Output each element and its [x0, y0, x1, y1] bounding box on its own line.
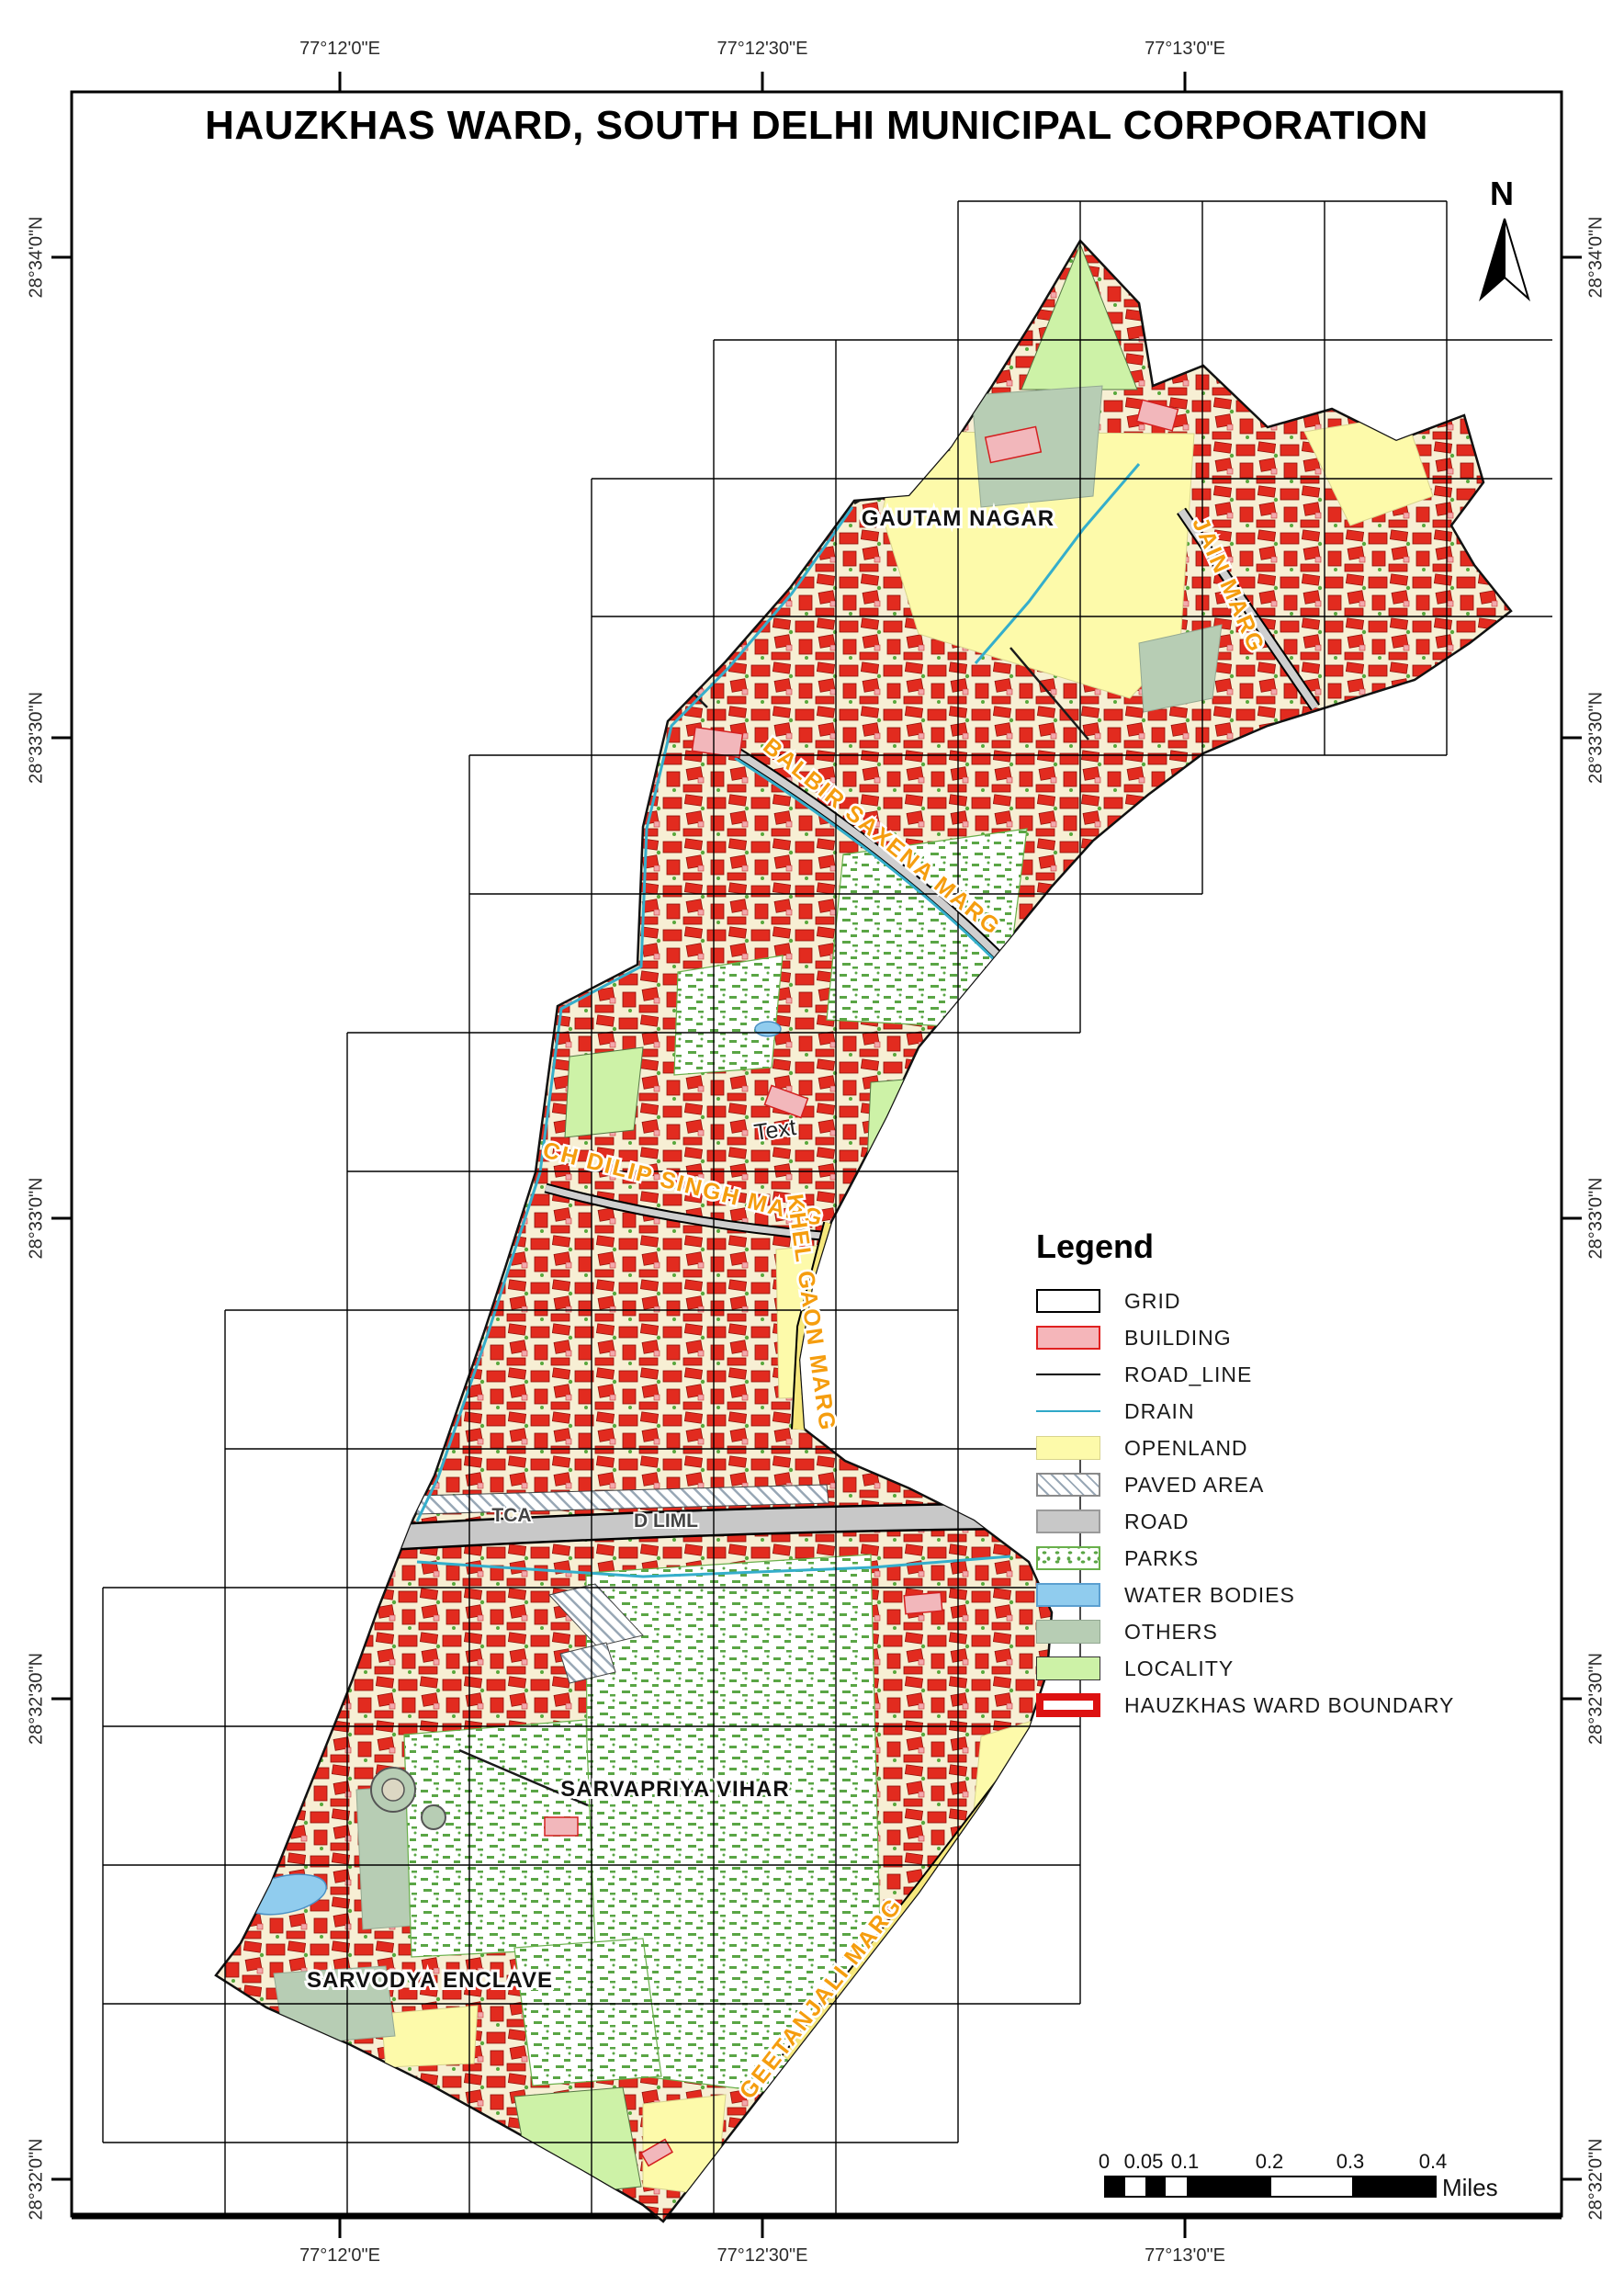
- axis-label-left-2: 28°33'0"N: [27, 1178, 48, 1260]
- north-arrow: [1481, 219, 1528, 299]
- paved-area-swatch: [1036, 1473, 1100, 1497]
- locality-label-gautam-nagar: GAUTAM NAGAR: [862, 506, 1054, 531]
- legend-title: Legend: [1036, 1227, 1551, 1266]
- axis-label-bottom-2: 77°13'0"E: [1145, 2245, 1225, 2267]
- scale-tick-03: 0.3: [1336, 2150, 1365, 2174]
- legend-item-water-bodies: WATER BODIES: [1036, 1577, 1551, 1613]
- misc-label-dliml: D LIML: [634, 1510, 698, 1532]
- locality-swatch: [1036, 1656, 1100, 1680]
- axis-label-right-4: 28°32'0"N: [1586, 2139, 1607, 2221]
- scale-tick-01: 0.1: [1171, 2150, 1200, 2174]
- axis-label-left-1: 28°33'30"N: [27, 692, 48, 784]
- legend-item-ward-boundary: HAUZKHAS WARD BOUNDARY: [1036, 1687, 1551, 1724]
- legend-item-openland: OPENLAND: [1036, 1430, 1551, 1466]
- scale-bar: 0 0.05 0.1 0.2 0.3 0.4 Miles: [1104, 2150, 1490, 2214]
- scale-bar-segments: [1104, 2176, 1437, 2198]
- water-bodies-swatch: [1036, 1583, 1100, 1607]
- road-swatch: [1036, 1509, 1100, 1533]
- grid-swatch: [1036, 1289, 1100, 1313]
- north-arrow-label: N: [1490, 175, 1514, 213]
- map-canvas: GAUTAM NAGAR SARVAPRIYA VIHAR SARVODYA E…: [0, 0, 1624, 2284]
- axis-label-left-3: 28°32'30"N: [27, 1653, 48, 1745]
- others-swatch: [1036, 1620, 1100, 1644]
- drain-swatch: [1036, 1399, 1100, 1423]
- axis-label-right-2: 28°33'0"N: [1586, 1178, 1607, 1260]
- scale-tick-005: 0.05: [1124, 2150, 1164, 2174]
- building-swatch: [1036, 1326, 1100, 1350]
- legend-item-drain: DRAIN: [1036, 1393, 1551, 1430]
- legend-item-road-line: ROAD_LINE: [1036, 1356, 1551, 1393]
- axis-label-top-0: 77°12'0"E: [299, 39, 380, 60]
- axis-label-top-1: 77°12'30"E: [717, 39, 808, 60]
- axis-label-right-1: 28°33'30"N: [1586, 692, 1607, 784]
- locality-label-sarvodya-enclave: SARVODYA ENCLAVE: [307, 1968, 553, 1993]
- map-page: GAUTAM NAGAR SARVAPRIYA VIHAR SARVODYA E…: [0, 0, 1624, 2284]
- axis-label-bottom-0: 77°12'0"E: [299, 2245, 380, 2267]
- legend-item-road: ROAD: [1036, 1503, 1551, 1540]
- legend-item-others: OTHERS: [1036, 1613, 1551, 1650]
- scale-tick-04: 0.4: [1419, 2150, 1448, 2174]
- legend-item-paved-area: PAVED AREA: [1036, 1466, 1551, 1503]
- misc-label-tca: TCA: [491, 1505, 531, 1526]
- scale-unit: Miles: [1442, 2174, 1498, 2202]
- legend: Legend GRID BUILDING ROAD_LINE DRAIN OPE…: [1036, 1227, 1551, 1724]
- legend-item-parks: PARKS: [1036, 1540, 1551, 1577]
- openland-swatch: [1036, 1436, 1100, 1460]
- legend-item-locality: LOCALITY: [1036, 1650, 1551, 1687]
- parks-swatch: [1036, 1546, 1100, 1570]
- scale-tick-02: 0.2: [1256, 2150, 1284, 2174]
- ward-boundary-swatch: [1036, 1693, 1100, 1717]
- road-line-swatch: [1036, 1362, 1100, 1386]
- axis-label-right-0: 28°34'0"N: [1586, 217, 1607, 299]
- axis-label-left-0: 28°34'0"N: [27, 217, 48, 299]
- legend-item-grid: GRID: [1036, 1283, 1551, 1319]
- scale-tick-0: 0: [1099, 2150, 1110, 2174]
- axis-label-top-2: 77°13'0"E: [1145, 39, 1225, 60]
- axis-label-right-3: 28°32'30"N: [1586, 1653, 1607, 1745]
- page-title: HAUZKHAS WARD, SOUTH DELHI MUNICIPAL COR…: [72, 103, 1562, 149]
- axis-label-bottom-1: 77°12'30"E: [717, 2245, 808, 2267]
- legend-item-building: BUILDING: [1036, 1319, 1551, 1356]
- axis-label-left-4: 28°32'0"N: [27, 2139, 48, 2221]
- locality-label-sarvapriya-vihar: SARVAPRIYA VIHAR: [560, 1777, 789, 1802]
